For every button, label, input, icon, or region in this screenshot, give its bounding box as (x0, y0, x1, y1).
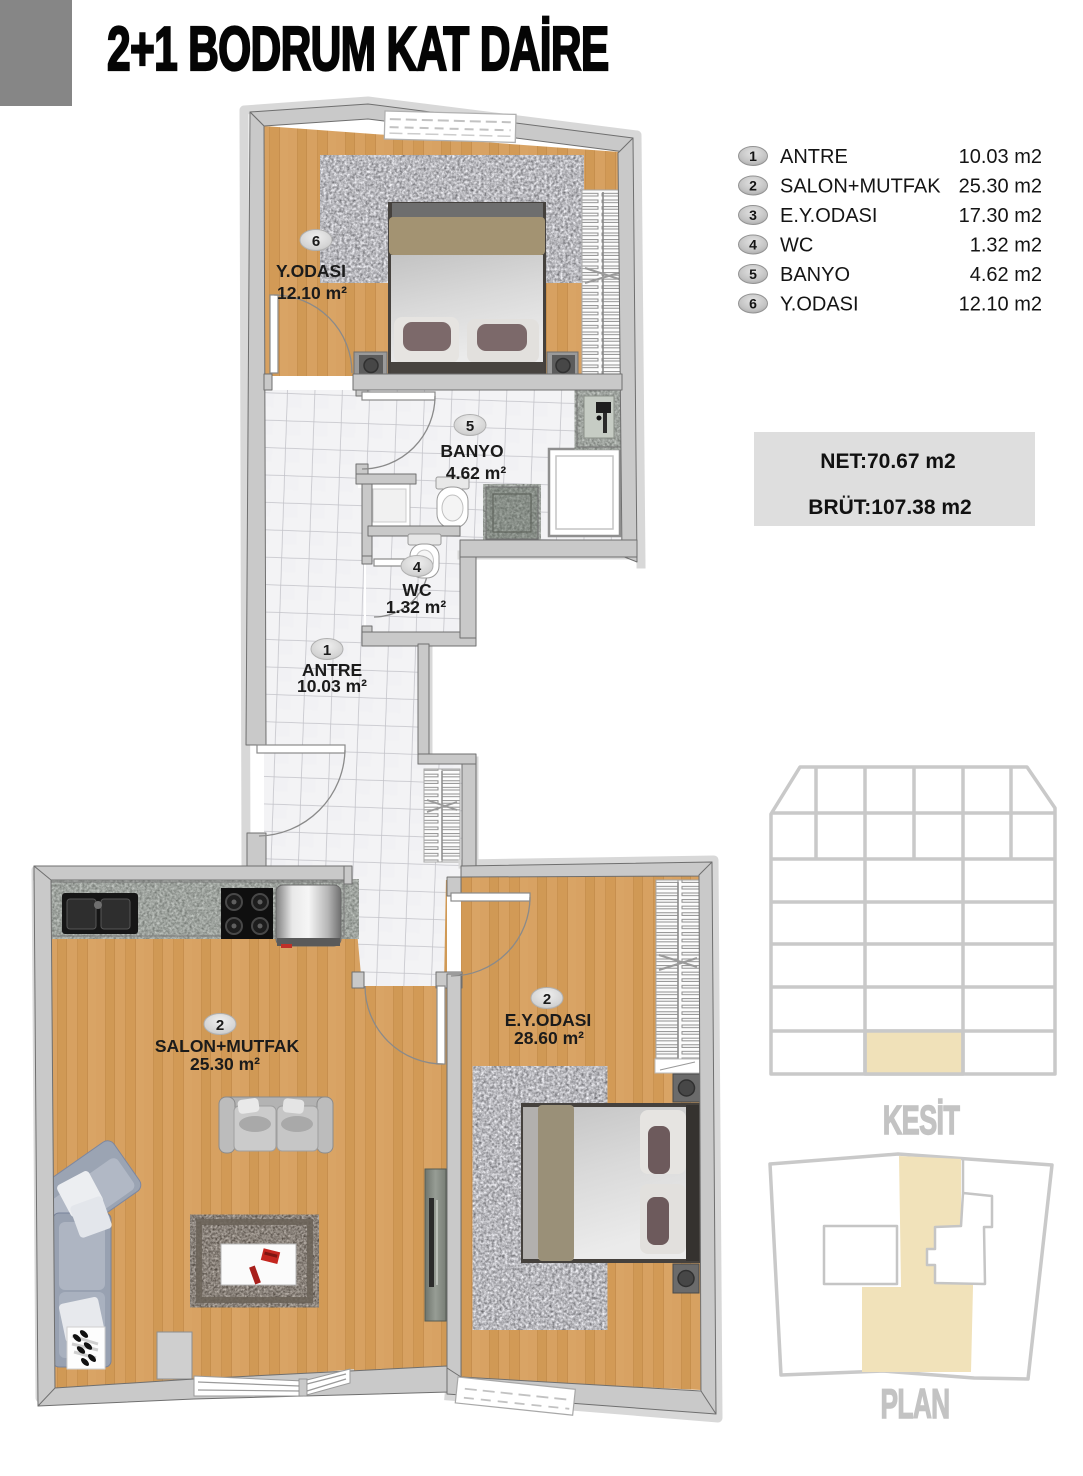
svg-text:4.62 m²: 4.62 m² (446, 463, 506, 483)
svg-text:17.30 m2: 17.30 m2 (959, 205, 1042, 227)
svg-text:1: 1 (749, 148, 757, 164)
svg-text:BANYO: BANYO (780, 264, 850, 286)
svg-text:BRÜT:107.38 m2: BRÜT:107.38 m2 (808, 496, 971, 519)
svg-text:Y.ODASI: Y.ODASI (276, 261, 346, 281)
svg-text:1.32 m2: 1.32 m2 (970, 235, 1042, 257)
svg-text:3: 3 (749, 207, 757, 223)
svg-text:10.03 m²: 10.03 m² (297, 676, 367, 696)
svg-text:25.30 m²: 25.30 m² (190, 1054, 260, 1074)
svg-text:1.32 m²: 1.32 m² (386, 597, 446, 617)
svg-text:4: 4 (413, 559, 422, 576)
svg-text:SALON+MUTFAK: SALON+MUTFAK (155, 1036, 300, 1056)
svg-text:KESİT: KESİT (883, 1097, 960, 1143)
svg-text:WC: WC (780, 235, 813, 257)
svg-text:4: 4 (749, 237, 757, 253)
svg-text:25.30 m2: 25.30 m2 (959, 176, 1042, 198)
svg-text:5: 5 (466, 418, 474, 435)
svg-text:2: 2 (543, 991, 551, 1008)
svg-text:2: 2 (216, 1017, 224, 1034)
svg-text:12.10 m²: 12.10 m² (277, 283, 347, 303)
svg-text:SALON+MUTFAK: SALON+MUTFAK (780, 176, 941, 198)
svg-text:E.Y.ODASI: E.Y.ODASI (505, 1010, 592, 1030)
svg-text:E.Y.ODASI: E.Y.ODASI (780, 205, 877, 227)
svg-text:4.62 m2: 4.62 m2 (970, 264, 1042, 286)
svg-text:BANYO: BANYO (440, 441, 503, 461)
svg-text:1: 1 (323, 642, 331, 659)
svg-text:Y.ODASI: Y.ODASI (780, 294, 859, 316)
svg-text:5: 5 (749, 266, 757, 282)
svg-text:6: 6 (749, 296, 757, 312)
svg-text:2: 2 (749, 178, 757, 194)
svg-text:12.10 m2: 12.10 m2 (959, 294, 1042, 316)
svg-text:10.03 m2: 10.03 m2 (959, 146, 1042, 168)
svg-text:28.60 m²: 28.60 m² (514, 1028, 584, 1048)
svg-text:PLAN: PLAN (881, 1380, 950, 1428)
svg-text:6: 6 (312, 233, 320, 250)
svg-text:ANTRE: ANTRE (780, 146, 848, 168)
svg-text:NET:70.67 m2: NET:70.67 m2 (820, 450, 955, 473)
svg-text:2+1 BODRUM KAT DAİRE: 2+1 BODRUM KAT DAİRE (107, 14, 609, 83)
